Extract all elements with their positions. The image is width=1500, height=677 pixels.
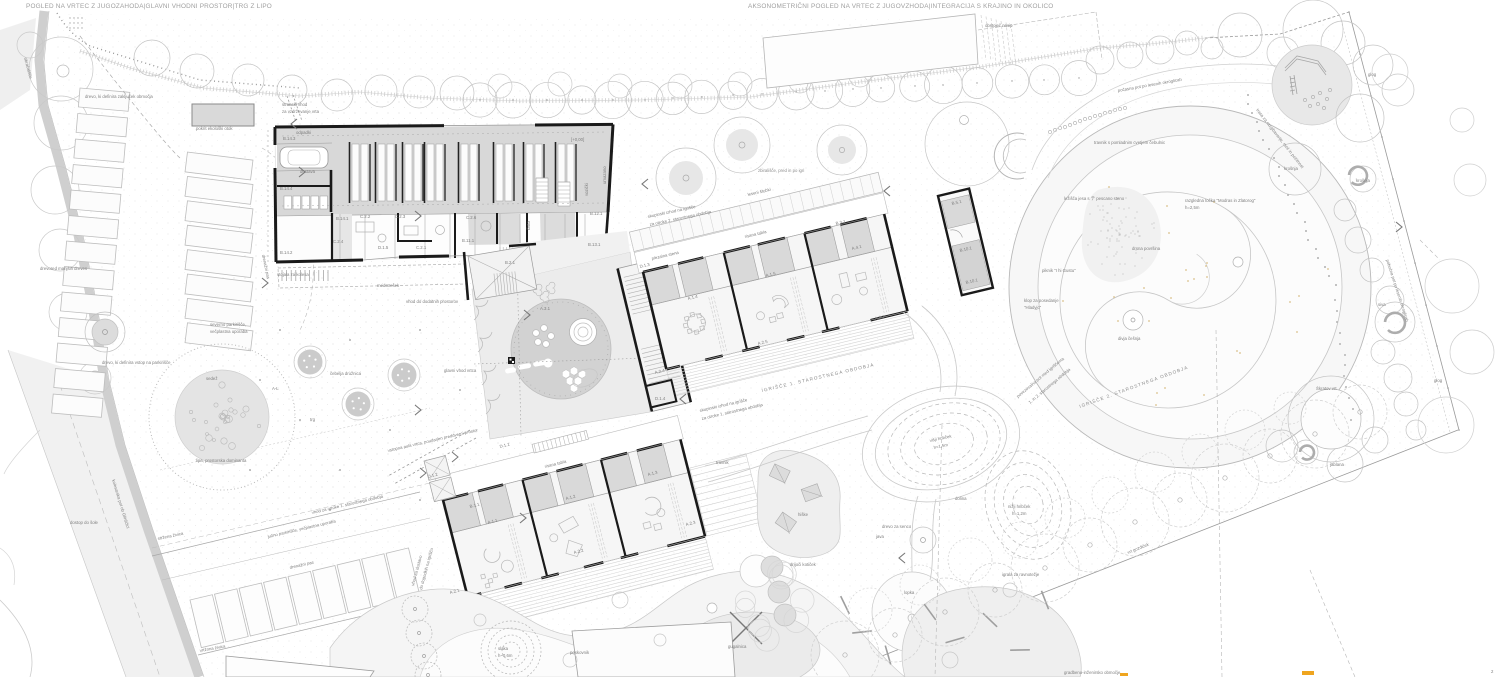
- svg-text:drsna površina: drsna površina: [1132, 246, 1161, 251]
- svg-text:[+0,00]: [+0,00]: [571, 137, 584, 142]
- svg-text:odpadki: odpadki: [296, 130, 311, 135]
- svg-text:divja češnja: divja češnja: [1118, 336, 1141, 341]
- svg-text:B.13.1: B.13.1: [588, 242, 601, 247]
- svg-text:C.2.2: C.2.2: [360, 214, 371, 219]
- svg-text:B.14.2: B.14.2: [280, 250, 293, 255]
- svg-text:travnik: travnik: [716, 460, 730, 465]
- svg-text:peskovnik: peskovnik: [570, 650, 590, 655]
- svg-text:C.2.1: C.2.1: [416, 245, 427, 250]
- svg-text:glavni vhod vrtca: glavni vhod vrtca: [444, 368, 477, 373]
- svg-text:lopka: lopka: [904, 590, 915, 595]
- svg-text:B.2.1: B.2.1: [505, 260, 516, 265]
- svg-text:zbirališče, pred in po igri: zbirališče, pred in po igri: [758, 168, 804, 173]
- svg-text:drijoči kotiček: drijoči kotiček: [790, 562, 817, 567]
- svg-text:razgledna točka "Modras in Zla: razgledna točka "Modras in Zlatorog": [1185, 198, 1256, 203]
- svg-text:trg: trg: [310, 417, 316, 422]
- svg-text:POGLED NA VRTEC Z JUGOZAHODA|G: POGLED NA VRTEC Z JUGOZAHODA|GLAVNI VHOD…: [26, 3, 272, 10]
- svg-text:travnik s pomladnim cvetjem če: travnik s pomladnim cvetjem čebulnic: [1094, 140, 1166, 145]
- svg-text:vhod do dodatnih prostorov: vhod do dodatnih prostorov: [406, 299, 459, 304]
- svg-text:siva: siva: [1378, 302, 1386, 307]
- svg-text:AKSONOMETRIČNI POGLED NA VRTEC: AKSONOMETRIČNI POGLED NA VRTEC Z JUGOVZH…: [748, 1, 1053, 10]
- svg-text:B.14.1: B.14.1: [336, 216, 349, 221]
- svg-text:C.2.6: C.2.6: [466, 215, 477, 220]
- svg-text:h~0,6m: h~0,6m: [498, 653, 513, 658]
- svg-text:pokrit ekološki otok: pokrit ekološki otok: [196, 126, 233, 131]
- svg-text:B.11.1: B.11.1: [462, 238, 475, 243]
- svg-text:D.1.5: D.1.5: [378, 245, 389, 250]
- svg-text:B.12.1: B.12.1: [590, 211, 603, 216]
- svg-text:h=2,5m: h=2,5m: [1185, 205, 1200, 210]
- svg-text:umazano: umazano: [602, 166, 607, 184]
- svg-text:java: java: [875, 534, 884, 539]
- svg-text:drevo, ki definira vstop na pa: drevo, ki definira vstop na parkirišče: [102, 360, 171, 365]
- svg-text:drevo za senco: drevo za senco: [882, 524, 912, 529]
- svg-text:B.14.3: B.14.3: [283, 136, 296, 141]
- svg-text:C.2.3: C.2.3: [395, 214, 406, 219]
- svg-text:klop za posedanje: klop za posedanje: [1024, 298, 1059, 303]
- svg-text:C.2.4: C.2.4: [333, 239, 344, 244]
- svg-text:"Hladyjc": "Hladyjc": [1024, 305, 1042, 310]
- svg-text:severno parkirišče,: severno parkirišče,: [210, 322, 246, 327]
- svg-text:hiške: hiške: [798, 512, 809, 517]
- svg-text:Škratov vrt: Škratov vrt: [1316, 386, 1337, 391]
- svg-text:stranski vhod: stranski vhod: [282, 102, 308, 107]
- svg-text:D.1.4: D.1.4: [655, 396, 666, 401]
- svg-text:stojala za kolesa: stojala za kolesa: [277, 272, 309, 277]
- svg-text:nižji hribček: nižji hribček: [1008, 504, 1031, 509]
- svg-text:dolina: dolina: [955, 496, 967, 501]
- svg-text:drevored manjših dreves: drevored manjših dreves: [40, 266, 87, 271]
- svg-text:večplastna uporaba: večplastna uporaba: [210, 329, 248, 334]
- svg-text:dostop do šole: dostop do šole: [70, 520, 99, 525]
- svg-text:slaka: slaka: [498, 646, 509, 651]
- svg-text:za vzdrževanje vrta: za vzdrževanje vrta: [282, 109, 320, 114]
- svg-text:jablana: jablana: [1329, 462, 1344, 467]
- svg-text:lipa, prostorska dominanta: lipa, prostorska dominanta: [196, 458, 247, 463]
- svg-text:sedež: sedež: [206, 376, 217, 381]
- svg-text:gugalnica: gugalnica: [728, 644, 747, 649]
- svg-text:medstrešek: medstrešek: [377, 283, 400, 288]
- svg-text:B.14.4: B.14.4: [280, 186, 293, 191]
- svg-text:gradbeno-inženirsko območje: gradbeno-inženirsko območje: [1064, 670, 1121, 675]
- svg-text:krošnja: krošnja: [1356, 178, 1370, 183]
- svg-text:igrala za ravnotežje: igrala za ravnotežje: [1002, 572, 1040, 577]
- svg-text:drevo, ki definira zaključek o: drevo, ki definira zaključek območja: [85, 94, 153, 99]
- svg-text:krošnja: krošnja: [1284, 166, 1298, 171]
- svg-text:čisto: čisto: [526, 221, 531, 230]
- svg-text:glog: glog: [1434, 378, 1443, 383]
- svg-text:čebelja družnica: čebelja družnica: [330, 371, 362, 376]
- svg-text:h=1,2m: h=1,2m: [1012, 511, 1027, 516]
- svg-text:A-L: A-L: [272, 386, 279, 391]
- svg-text:obstoječ nasip: obstoječ nasip: [985, 23, 1013, 28]
- svg-text:A.3.1: A.3.1: [540, 306, 551, 311]
- svg-text:piknik "I hi Gustu": piknik "I hi Gustu": [1042, 268, 1076, 273]
- svg-text:vozički: vozički: [584, 183, 589, 196]
- svg-text:glog: glog: [1368, 72, 1377, 77]
